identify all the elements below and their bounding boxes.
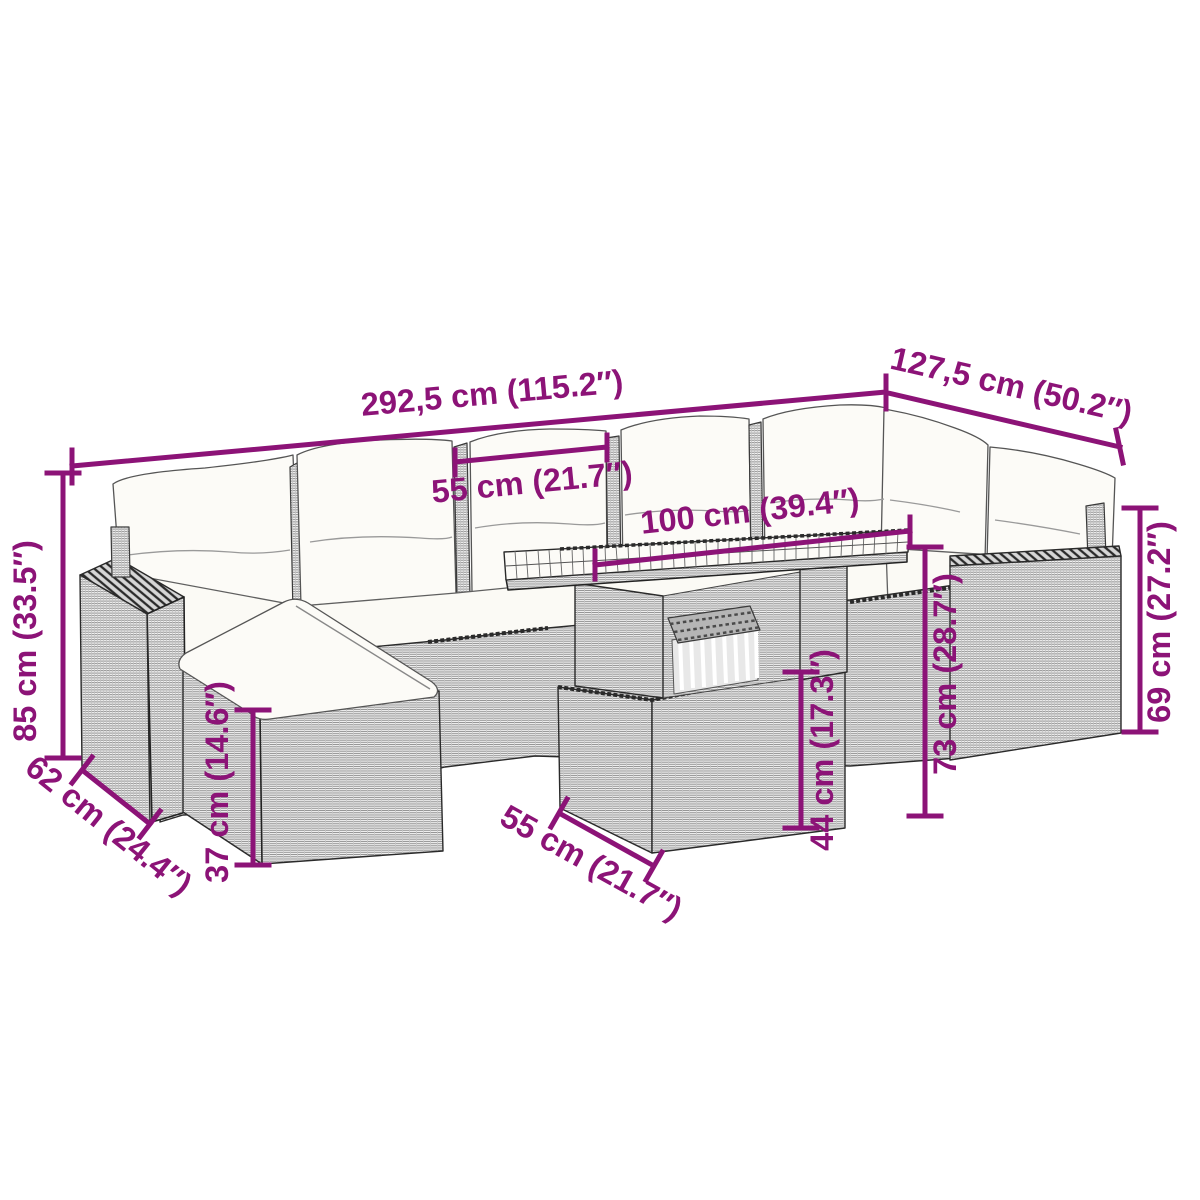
svg-text:69 cm (27.2″): 69 cm (27.2″) <box>1141 521 1177 723</box>
svg-text:37 cm (14.6″): 37 cm (14.6″) <box>199 681 235 883</box>
svg-text:85 cm (33.5″): 85 cm (33.5″) <box>7 540 43 742</box>
svg-text:73 cm (28.7″): 73 cm (28.7″) <box>927 573 963 775</box>
svg-text:44 cm (17.3″): 44 cm (17.3″) <box>804 649 840 851</box>
